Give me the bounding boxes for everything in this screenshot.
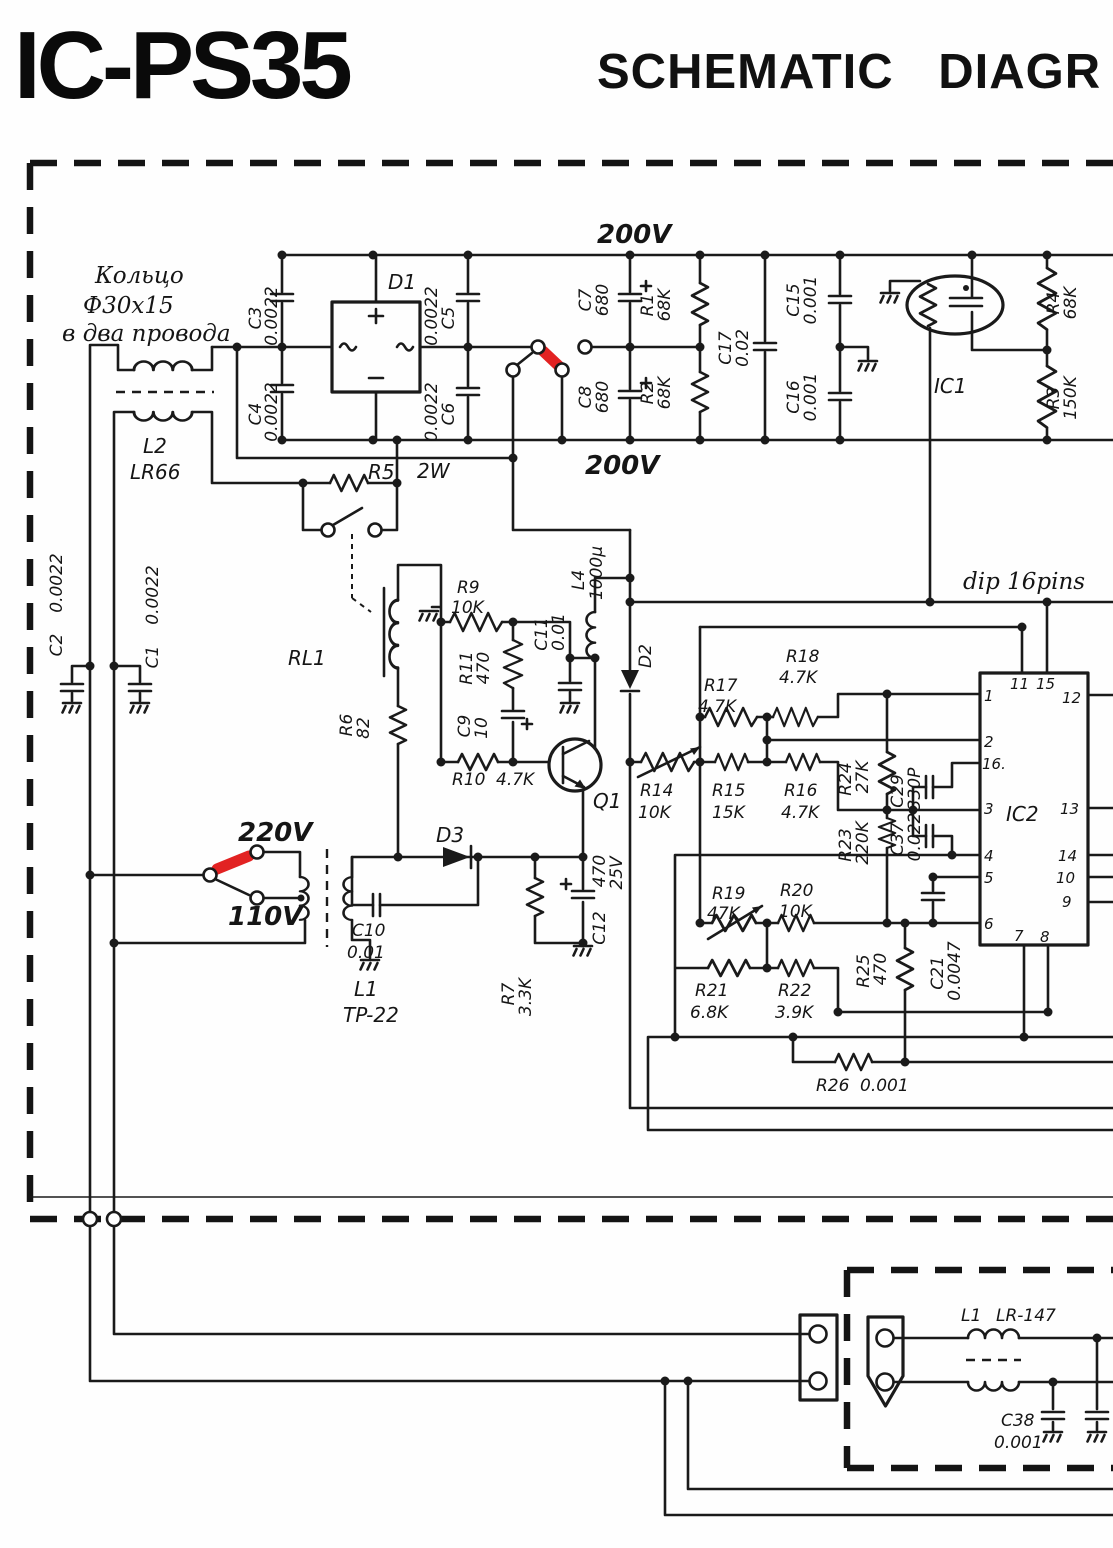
c10-val: 0.01 [347, 943, 385, 963]
c5-ref: C5 [439, 307, 459, 330]
r18-res [773, 708, 818, 726]
c1-cap [129, 684, 151, 691]
c2-cap [61, 684, 83, 691]
c21-val: 0.0047 [945, 941, 965, 1001]
r19-val: 47K [707, 904, 742, 924]
c2-val: 0.0022 [47, 553, 67, 612]
c9-val: 10 [472, 717, 492, 739]
border-eyelet-1 [83, 1212, 97, 1226]
r10-res [458, 754, 498, 770]
c38-val: 0.001 [994, 1433, 1043, 1453]
v110-label: 110V [228, 902, 304, 932]
r7-val: 3.3K [516, 976, 536, 1016]
ic2-pin-4: 4 [984, 847, 994, 865]
c4-val: 0.0022 [262, 382, 282, 441]
schematic-canvas: IC-PS35 SCHEMATIC DIAGR [0, 0, 1113, 1548]
r18-val: 4.7K [779, 668, 819, 688]
transistor-q1 [549, 739, 601, 791]
l1rf-top-winding [968, 1330, 1019, 1339]
c6-cap [457, 388, 479, 395]
ic2-pin-11: 11 [1010, 675, 1029, 693]
r21-res [708, 960, 750, 976]
c16-val: 0.001 [801, 373, 821, 422]
r23-val: 220K [853, 819, 873, 864]
c9-cap [502, 711, 524, 718]
ring-note-3: в два провода [62, 321, 231, 347]
r24-val: 27K [853, 759, 873, 794]
r26-ref: R26 [816, 1076, 850, 1096]
r18-ref: R18 [786, 647, 820, 667]
c10-ref: C10 [352, 921, 386, 941]
l2-top-winding [134, 362, 192, 371]
relay-link-dash [352, 534, 371, 612]
c17-val: 0.02 [733, 329, 753, 367]
page-title: IC-PS35 [14, 12, 350, 119]
r15-ref: R15 [712, 781, 745, 801]
l1p-val: TP-22 [343, 1003, 399, 1027]
c16-cap [829, 393, 851, 400]
ic2-pin-15: 15 [1036, 675, 1055, 693]
c12-ref: C12 [590, 911, 610, 945]
c17-cap [754, 343, 776, 350]
ic1-lamp [950, 298, 982, 306]
r17-val: 4.7K [698, 697, 738, 717]
r17-ref: R17 [704, 676, 738, 696]
r1-val: 68K [655, 287, 675, 322]
c7-val: 680 [593, 284, 613, 316]
ic2-pin-16: 16. [982, 755, 1006, 773]
selector-red-strap-bottom [217, 856, 249, 869]
l4-ref: L4 [569, 570, 589, 590]
v200-top: 200V [597, 220, 673, 250]
c21-cap [922, 893, 944, 900]
r19-ref: R19 [712, 884, 745, 904]
ic2-pin-5: 5 [984, 869, 994, 887]
l1rf-bottom-winding [968, 1382, 1019, 1391]
q1-label: Q1 [593, 789, 621, 813]
schematic-page: IC-PS35 SCHEMATIC DIAGR [0, 0, 1113, 1548]
r1-res [692, 283, 708, 325]
diode-d3 [443, 846, 471, 868]
c15-cap [829, 296, 851, 303]
c38a-cap [1042, 1412, 1064, 1419]
c10-cap [373, 894, 380, 916]
r5-val: 2W [417, 459, 451, 483]
c1-val: 0.0022 [143, 565, 163, 624]
ic2-pin-6: 6 [984, 915, 994, 933]
selector-lever-top [517, 353, 532, 365]
bridge-rectifier-d1 [332, 302, 420, 392]
d3-label: D3 [436, 823, 464, 847]
rl1-coil [390, 600, 399, 668]
c15-val: 0.001 [801, 276, 821, 325]
ic2-pin-1: 1 [984, 687, 994, 705]
r6-val: 82 [354, 717, 374, 739]
r21-val: 6.8K [690, 1003, 730, 1023]
rl1-label: RL1 [288, 646, 326, 670]
ic2-pin-3: 3 [984, 800, 994, 818]
c6-ref: C6 [439, 402, 459, 425]
r21-ref: R21 [695, 981, 728, 1001]
l4-val: 1000µ [587, 546, 607, 600]
ic2-pin-7: 7 [1014, 927, 1024, 945]
c38-ref: C38 [1001, 1411, 1035, 1431]
ic2-pin-12: 12 [1062, 689, 1081, 707]
selector-lever-bottom [215, 879, 249, 895]
ic2-label: IC2 [1006, 802, 1039, 826]
r9-ref: R9 [457, 578, 480, 598]
r16-res [786, 754, 820, 770]
r10-ref: R10 [452, 770, 485, 790]
d1-label: D1 [388, 270, 416, 294]
c11-cap [559, 683, 581, 690]
r16-val: 4.7K [781, 803, 821, 823]
v220-label: 220V [238, 818, 314, 848]
r14-ref: R14 [640, 781, 673, 801]
connector-plug [800, 1315, 837, 1400]
c12-val2: 25V [607, 855, 627, 890]
r16-ref: R16 [784, 781, 818, 801]
r2-res [692, 372, 708, 412]
c11-val: 0.01 [549, 613, 569, 651]
r25-val: 470 [871, 953, 891, 985]
r22-res [778, 960, 814, 976]
r9-val: 10K [451, 598, 486, 618]
r10-val: 4.7K [496, 770, 536, 790]
c29-val: 330P [905, 767, 925, 810]
d2-label: D2 [636, 644, 656, 668]
dip16-note: dip 16pins [963, 569, 1085, 595]
c1-ref: C1 [143, 646, 163, 669]
r4-val: 68K [1061, 285, 1081, 320]
l1rf-val: LR-147 [996, 1306, 1056, 1326]
l1rf-ref: L1 [961, 1306, 981, 1326]
ic2-pin-13: 13 [1060, 800, 1079, 818]
rf-box-border [847, 1270, 1113, 1468]
ic2-pin-14: 14 [1058, 847, 1077, 865]
r14-val: 10K [638, 803, 673, 823]
border-eyelet-2 [107, 1212, 121, 1226]
l2-bottom-winding [134, 412, 192, 421]
voltage-selector-220-110 [204, 846, 264, 905]
c2-ref: C2 [47, 634, 67, 657]
r26-val: 0.001 [860, 1076, 909, 1096]
ic1-photoresistor [920, 284, 936, 326]
ic1-optocoupler [907, 276, 1003, 334]
page-subtitle: SCHEMATIC DIAGR [597, 45, 1101, 99]
ic2-pin-8: 8 [1040, 928, 1050, 946]
diode-d2 [621, 670, 639, 691]
c8-val: 680 [593, 381, 613, 413]
r15-val: 15K [712, 803, 747, 823]
c5-cap [457, 294, 479, 301]
r5-ref: R5 [368, 460, 395, 484]
c3-val: 0.0022 [262, 286, 282, 345]
ic2-pin-10: 10 [1056, 869, 1075, 887]
ic2-pin-2: 2 [984, 733, 994, 751]
r26-res [835, 1054, 872, 1070]
c29-cap [926, 776, 933, 798]
r11-res [504, 640, 522, 688]
ic2-pin-9: 9 [1062, 893, 1072, 911]
r20-ref: R20 [780, 881, 813, 901]
r6-res [390, 706, 406, 744]
l2-val: LR66 [130, 460, 181, 484]
c37-val: 0.022 [905, 813, 925, 862]
l2-ref: L2 [143, 434, 167, 458]
r2-val: 68K [655, 375, 675, 410]
r25-res [897, 948, 913, 990]
c12-cap [572, 891, 594, 898]
relay-contact [322, 508, 382, 537]
v200-bottom: 200V [585, 451, 661, 481]
c38b-cap [1086, 1412, 1108, 1419]
r22-ref: R22 [778, 981, 811, 1001]
ic1-label: IC1 [934, 374, 967, 398]
r5-res [330, 475, 368, 491]
r20-val: 10K [779, 902, 814, 922]
ring-note-1: Кольцо [94, 263, 184, 289]
title-block: IC-PS35 SCHEMATIC DIAGR [14, 12, 1101, 119]
r11-val: 470 [474, 652, 494, 684]
l4-coil [587, 612, 596, 658]
r7-res [527, 878, 543, 916]
r15-res [715, 754, 748, 770]
c37-cap [926, 825, 933, 847]
r3-val: 150K [1061, 374, 1081, 419]
connector-socket [868, 1317, 903, 1406]
ring-note-2: Ф30х15 [83, 293, 174, 319]
r22-val: 3.9K [775, 1003, 815, 1023]
l1p-ref: L1 [354, 977, 378, 1001]
